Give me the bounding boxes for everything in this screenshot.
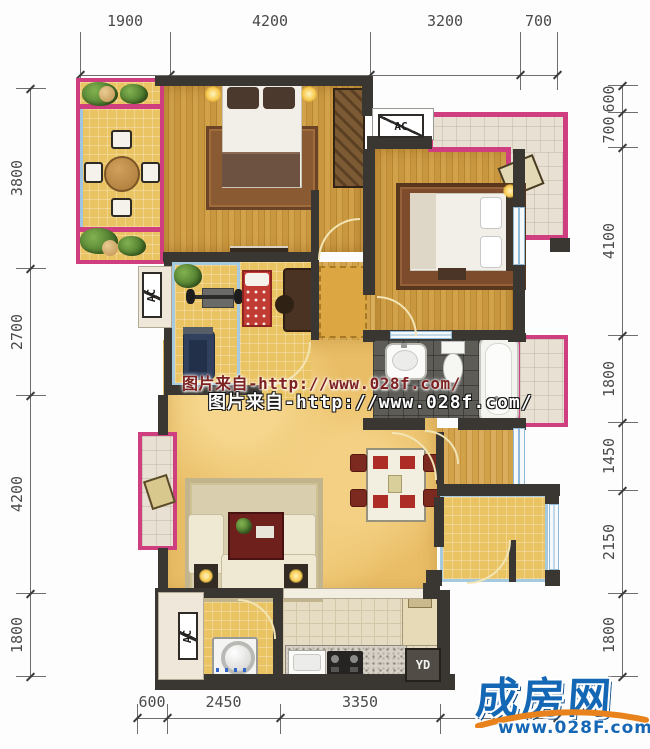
dim-label: 3200: [410, 12, 480, 30]
balcony-rail: [428, 112, 568, 117]
kitchen-pass-counter: [283, 588, 425, 599]
ac-label: AC: [182, 629, 195, 642]
bed-blanket: [222, 152, 300, 187]
stove-knobs: [331, 667, 339, 672]
dim-label: 4200: [235, 12, 305, 30]
ac-unit-bottom: AC: [178, 612, 198, 660]
dim-label: 2150: [600, 507, 618, 577]
dim-slash: [26, 672, 35, 681]
dim-label: 3800: [8, 143, 26, 213]
dim-label: 1800: [600, 344, 618, 414]
bed-duvet-fold: [410, 193, 436, 269]
pillow: [480, 236, 502, 268]
dim-label: 1450: [600, 421, 618, 491]
lamp-glow: [289, 569, 303, 583]
wardrobe: [333, 88, 365, 188]
yd-duct: YD: [405, 648, 441, 682]
entry-rug: [319, 266, 367, 338]
dim-label: 4100: [600, 206, 618, 276]
balcony-top-right: [428, 112, 568, 152]
wall-lamp: [301, 86, 317, 102]
bedroom-window: [513, 207, 525, 265]
wall: [508, 333, 526, 342]
watermark-line2: 图片来自-http://www.028f.com/: [208, 388, 533, 414]
ac-label: AC: [146, 288, 159, 301]
dim-tick: [520, 32, 521, 90]
wall: [311, 262, 319, 340]
ac-unit-left: AC: [142, 272, 162, 318]
treadmill-belt: [189, 340, 207, 372]
dim-line: [622, 85, 623, 676]
wall: [426, 570, 442, 586]
room-window: [549, 504, 559, 570]
dim-label: 1900: [90, 12, 160, 30]
wall: [545, 570, 560, 586]
treadmill-console: [183, 327, 213, 334]
table-plant: [236, 518, 252, 534]
corridor-window: [513, 428, 525, 486]
washing-machine-controls: [216, 668, 250, 672]
desk-chair: [275, 295, 294, 314]
dining-chair: [350, 489, 367, 507]
placemat: [400, 495, 415, 508]
wall: [437, 484, 560, 496]
plant: [118, 236, 146, 256]
patio-chair: [84, 162, 103, 183]
wall: [155, 76, 372, 86]
patio-chair: [111, 198, 132, 217]
plant: [174, 264, 202, 288]
patio-chair: [111, 130, 132, 149]
wall: [363, 149, 375, 295]
ac-label: AC: [394, 120, 407, 133]
kitchen-sink-basin: [293, 654, 321, 671]
plant: [120, 84, 148, 104]
wall: [158, 395, 168, 435]
wall-lamp: [205, 86, 221, 102]
balcony-rail: [428, 147, 511, 152]
dim-label: 4200: [8, 459, 26, 529]
wall: [513, 149, 525, 207]
placemat: [373, 495, 388, 508]
dim-label: 700: [600, 95, 618, 165]
patio-table: [104, 156, 140, 192]
barbell-plate: [186, 289, 195, 304]
balcony-rail: [563, 112, 568, 240]
wall: [513, 265, 525, 340]
placemat: [373, 456, 388, 469]
wall: [363, 418, 425, 430]
dim-label: 700: [504, 12, 574, 30]
flower-pot: [102, 240, 118, 256]
floor-plan-image: 1900420032007006002450335038002700420018…: [0, 0, 650, 749]
pillow: [480, 197, 502, 229]
flower-pot: [99, 86, 115, 102]
burner: [331, 655, 339, 663]
dim-label: 2700: [8, 297, 26, 367]
site-logo: 成房网 www.028F.com: [474, 666, 650, 749]
wall: [434, 497, 444, 547]
logo-url: www.028F.com: [498, 718, 650, 738]
pillow: [227, 87, 259, 109]
burner: [350, 655, 358, 663]
dim-label: 2450: [189, 693, 259, 711]
stove-knobs: [350, 667, 358, 672]
wall: [163, 252, 318, 262]
dim-tick: [557, 32, 558, 90]
wall: [545, 494, 559, 504]
pillow: [263, 87, 295, 109]
sink-basin: [392, 350, 418, 371]
dim-label: 1800: [8, 600, 26, 670]
bed-bench: [438, 268, 466, 280]
barbell: [190, 295, 240, 299]
dim-label: 3350: [325, 693, 395, 711]
wall: [550, 238, 570, 252]
faucet: [401, 343, 407, 348]
table-tray: [256, 526, 274, 538]
yd-label: YD: [416, 658, 430, 672]
ac-unit-top: AC: [378, 114, 424, 138]
balcony-window-edge: [80, 109, 83, 227]
dining-chair: [350, 454, 367, 472]
pillow: [245, 273, 269, 286]
dim-label: 600: [117, 693, 187, 711]
dim-line: [30, 88, 31, 676]
lamp-glow: [199, 569, 213, 583]
patio-chair: [141, 162, 160, 183]
dim-label: 1800: [600, 600, 618, 670]
